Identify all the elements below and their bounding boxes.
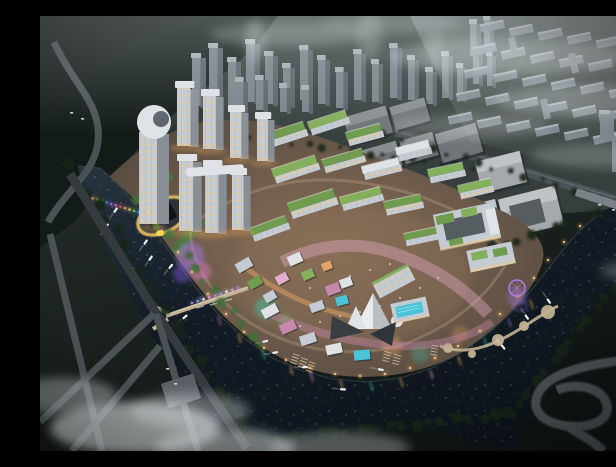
tree xyxy=(101,215,109,223)
midrise-windows xyxy=(398,148,432,160)
bg-tower-roof xyxy=(335,67,344,72)
retail-village xyxy=(235,251,372,362)
retail-roof xyxy=(263,290,278,304)
housing-bar xyxy=(501,48,526,60)
architectural-rendering xyxy=(40,16,616,451)
housing-bar-roof xyxy=(464,66,488,73)
vignette xyxy=(40,16,616,451)
tower-base-glow xyxy=(225,229,254,236)
boat xyxy=(302,366,308,368)
light-reflections xyxy=(200,296,533,391)
hotel-slab xyxy=(372,264,416,299)
car xyxy=(612,209,615,211)
warehouse-roof xyxy=(399,132,434,149)
housing-bar-vertical xyxy=(598,113,609,134)
street-light xyxy=(177,251,179,253)
tower-roof xyxy=(255,112,271,119)
light-reflection xyxy=(484,338,487,347)
housing-row xyxy=(501,47,526,60)
tower-windows xyxy=(203,94,216,149)
street-lights xyxy=(145,209,582,378)
housing-bar-roof xyxy=(506,120,530,127)
boat-wake xyxy=(100,229,104,235)
bg-tower xyxy=(283,66,290,106)
midrise-parapet xyxy=(403,226,438,234)
rainbow-light xyxy=(138,211,140,213)
dusk-sky-ground xyxy=(40,16,616,451)
tree xyxy=(552,182,558,188)
housing-bar xyxy=(564,129,589,141)
tower-roof xyxy=(175,81,194,88)
water-glow xyxy=(191,262,211,282)
car xyxy=(166,368,169,370)
right-block xyxy=(612,134,616,172)
street-light xyxy=(225,313,227,315)
housing-bar xyxy=(538,29,563,41)
midrise-facade xyxy=(265,129,309,149)
warehouse xyxy=(355,140,405,180)
weir-light-glow xyxy=(218,291,223,296)
tower-roof xyxy=(177,154,197,161)
street-light xyxy=(334,373,336,375)
dock-tick xyxy=(393,360,400,362)
housing-row xyxy=(509,24,534,37)
tree xyxy=(160,305,170,315)
bg-tower xyxy=(318,58,325,104)
light-reflection xyxy=(508,318,511,327)
dock-tick xyxy=(300,360,307,362)
retail-unit xyxy=(325,282,343,298)
midrise-facade xyxy=(406,233,442,246)
car xyxy=(70,112,73,114)
warehouse-shadow xyxy=(477,153,529,195)
dock-tick xyxy=(431,351,438,352)
warehouse-roof xyxy=(498,186,558,214)
retail-shadow xyxy=(276,273,291,287)
pier-platforms xyxy=(443,305,555,358)
cloud xyxy=(600,261,616,281)
tree xyxy=(444,153,448,157)
housing-bar-roof xyxy=(580,82,604,89)
isolated-building xyxy=(161,373,201,408)
dock-tick xyxy=(384,351,391,353)
rainbow-light xyxy=(128,208,130,210)
retail-unit xyxy=(247,275,265,292)
boat-wake xyxy=(177,319,182,323)
cloud xyxy=(358,16,382,61)
street-light-glow xyxy=(432,355,437,360)
retail-roof xyxy=(309,300,325,313)
bg-tower-roof xyxy=(255,75,264,80)
bg-tower-side xyxy=(263,80,268,112)
midrise-facade xyxy=(386,201,425,215)
tree xyxy=(196,354,208,366)
tree xyxy=(234,129,242,137)
housing-row xyxy=(567,32,592,45)
boat xyxy=(143,239,148,245)
housing-bar-roof xyxy=(472,43,496,50)
street-light-glow xyxy=(407,365,412,370)
tree xyxy=(599,293,609,303)
retail-shadow xyxy=(280,320,299,336)
warehouse xyxy=(389,97,433,133)
rainbow-light-glow xyxy=(113,203,118,208)
housing-row xyxy=(601,109,616,122)
office-court-block xyxy=(433,202,501,251)
tower-windows xyxy=(179,159,193,231)
tower-cluster xyxy=(169,81,278,239)
midrise-facade xyxy=(291,197,339,219)
development-site-ground xyxy=(110,120,543,377)
bg-tower-side xyxy=(201,58,206,108)
midrise xyxy=(345,123,385,147)
ring-road xyxy=(190,180,510,352)
housing-row xyxy=(485,93,510,106)
light-reflection xyxy=(262,350,265,359)
warehouse-roof xyxy=(475,151,522,173)
weir-light xyxy=(225,291,227,293)
warehouse-shadow xyxy=(346,108,396,147)
bg-tower-roof xyxy=(235,77,244,82)
tree xyxy=(367,151,375,159)
tree xyxy=(440,163,446,169)
midrise-windows xyxy=(275,164,320,182)
street-light-glow xyxy=(189,269,194,274)
tree xyxy=(551,354,561,364)
dock xyxy=(290,354,300,365)
retail-unit xyxy=(279,319,299,336)
tree xyxy=(434,417,444,427)
retail-unit xyxy=(339,276,355,290)
weir-light xyxy=(231,289,233,291)
car xyxy=(174,383,177,385)
retail-roof xyxy=(339,276,353,289)
tree xyxy=(475,159,483,167)
boat xyxy=(546,298,551,304)
light-reflection xyxy=(218,316,221,325)
housing-row xyxy=(530,51,555,64)
tree xyxy=(78,175,86,183)
bg-tower-side xyxy=(493,56,496,88)
housing-row xyxy=(480,20,505,33)
housing-row xyxy=(564,128,589,141)
weir-light-glow xyxy=(195,299,200,304)
weir-foam xyxy=(196,299,232,308)
housing-row xyxy=(559,55,584,68)
tree xyxy=(480,414,490,424)
housing-bar xyxy=(485,94,510,106)
midrise xyxy=(361,157,402,181)
housing-bar-roof xyxy=(559,55,583,62)
boat-group xyxy=(495,338,506,350)
bg-tower xyxy=(473,44,479,84)
warehouse-body xyxy=(389,98,430,131)
cloud xyxy=(320,16,460,34)
midrise xyxy=(261,120,309,149)
light-reflection xyxy=(458,356,461,365)
warehouse xyxy=(343,105,396,147)
light-reflection xyxy=(238,334,241,343)
bg-tower-side xyxy=(463,68,467,102)
bg-tower-side xyxy=(479,46,483,86)
retail-shadow xyxy=(300,333,318,347)
midrise-facade xyxy=(342,194,384,211)
light-reflection xyxy=(200,296,203,305)
dock-tick xyxy=(432,345,439,346)
southwest-roads xyxy=(40,42,247,451)
retail-shadow xyxy=(326,283,343,297)
housing-bar-roof xyxy=(448,112,472,119)
bg-tower xyxy=(209,46,218,104)
rainbow-light xyxy=(147,214,149,216)
boats xyxy=(99,207,551,391)
rainbow-light-glow xyxy=(145,212,150,217)
street-light xyxy=(479,330,481,332)
plaza-dot xyxy=(369,269,371,271)
cloud xyxy=(130,393,250,429)
boat-wake xyxy=(332,388,339,389)
weir-light-glow xyxy=(207,295,212,300)
dock-tick xyxy=(383,357,390,359)
warehouse-roof xyxy=(389,98,426,116)
street-light xyxy=(309,367,311,369)
retail-roof xyxy=(335,295,349,307)
tree xyxy=(611,284,616,296)
housing-row xyxy=(580,82,605,95)
car xyxy=(81,118,84,120)
tree xyxy=(216,298,226,308)
tree xyxy=(378,130,386,138)
street-light xyxy=(434,357,436,359)
tower-front xyxy=(179,159,193,231)
cloud xyxy=(50,402,220,451)
tree xyxy=(199,279,205,285)
lawn-strip xyxy=(170,215,205,258)
bg-tower xyxy=(354,52,361,100)
bg-tower xyxy=(426,70,433,104)
rainbow-light-glow xyxy=(104,200,109,205)
pier-platform xyxy=(443,343,453,353)
tree xyxy=(248,135,252,139)
dock xyxy=(392,354,401,365)
tree xyxy=(184,345,194,355)
bg-tower-roof xyxy=(208,43,218,48)
plaza-dot xyxy=(389,263,391,265)
midrise-blocks xyxy=(249,109,495,246)
warehouse-shadow xyxy=(392,100,433,133)
housing-bar xyxy=(472,44,497,56)
cloud xyxy=(245,19,265,63)
light-reflection xyxy=(290,366,293,375)
retail-roof xyxy=(235,257,254,274)
tree xyxy=(357,424,367,434)
event-tent xyxy=(346,293,403,329)
housing-row xyxy=(456,89,481,102)
dock-tick xyxy=(394,357,401,359)
street-light-glow xyxy=(531,275,536,280)
boat-group xyxy=(332,387,346,390)
bg-tower xyxy=(192,56,201,106)
dock-tick xyxy=(301,358,308,360)
tree xyxy=(185,251,193,259)
tree xyxy=(179,331,187,339)
boat xyxy=(148,255,153,261)
tree xyxy=(571,219,577,225)
retail-shadow xyxy=(288,253,305,268)
water-glow xyxy=(255,297,277,319)
housing-row xyxy=(593,132,616,145)
right-block xyxy=(600,112,614,138)
midrise-roof xyxy=(395,140,430,155)
rendering-canvas xyxy=(40,16,616,451)
housing-bar xyxy=(601,110,616,122)
rainbow-light xyxy=(124,207,126,209)
tower-base-glow xyxy=(195,148,227,155)
tree xyxy=(185,122,193,130)
bg-tower xyxy=(336,70,343,108)
tower-side xyxy=(240,113,248,159)
warehouse xyxy=(468,198,503,230)
bg-tower-side xyxy=(343,72,348,110)
background-city-ground xyxy=(190,16,616,216)
retail-unit xyxy=(335,294,350,308)
midrise-windows xyxy=(291,198,338,217)
tree xyxy=(508,168,514,174)
housing-bar xyxy=(593,133,616,145)
tree xyxy=(307,141,313,147)
housing-bar xyxy=(551,79,576,91)
tree xyxy=(152,222,160,230)
midrise-roof xyxy=(261,122,305,143)
housing-bar xyxy=(522,75,547,87)
tree xyxy=(125,256,133,264)
tree xyxy=(156,291,164,299)
tree xyxy=(552,222,560,230)
plaza-paths xyxy=(246,246,492,346)
light-reflection xyxy=(370,382,373,391)
bg-tower-side xyxy=(243,82,248,116)
boat-wake xyxy=(139,245,143,251)
tree xyxy=(234,412,242,420)
midrise-windows xyxy=(265,130,308,148)
tree xyxy=(216,131,222,137)
tree xyxy=(257,342,263,348)
boat-wake xyxy=(255,342,262,344)
cloud xyxy=(390,38,616,74)
tree xyxy=(489,167,493,171)
bg-tower-side xyxy=(379,64,383,104)
tower-skybridge xyxy=(186,164,244,177)
housing-bar xyxy=(559,56,584,68)
retail-roof xyxy=(321,261,333,272)
street-light xyxy=(285,359,287,361)
rainbow-light xyxy=(142,213,144,215)
tree xyxy=(141,279,153,291)
tree xyxy=(165,229,175,239)
bg-tower xyxy=(390,46,397,98)
tower-windows xyxy=(232,173,244,230)
midrise-parapet xyxy=(261,121,303,136)
midrise xyxy=(287,188,339,219)
crescent-tower xyxy=(137,105,171,232)
housing-row xyxy=(535,124,560,137)
pier-platform xyxy=(519,321,529,331)
retail-roof xyxy=(301,268,316,281)
housing-bar-roof xyxy=(509,24,533,31)
ferris-wheel xyxy=(509,280,527,311)
tree xyxy=(541,177,545,181)
tree xyxy=(173,244,179,250)
warehouse-court xyxy=(509,198,546,229)
boat-wake xyxy=(496,339,500,344)
light-reflection xyxy=(400,378,403,387)
housing-grid xyxy=(448,20,616,145)
midrise-roof xyxy=(361,158,400,174)
midrise-parapet xyxy=(321,148,362,161)
bg-tower-roof xyxy=(299,45,308,50)
boat-group xyxy=(108,207,118,220)
bg-tower-side xyxy=(287,88,291,114)
street-light-glow xyxy=(455,343,460,348)
water-glow xyxy=(452,326,468,342)
northwest-forest xyxy=(40,16,278,248)
tower-side xyxy=(242,176,250,231)
tree xyxy=(538,230,544,236)
bg-tower-side xyxy=(308,50,313,102)
housing-bar xyxy=(448,113,473,125)
midrise-roof xyxy=(287,189,335,212)
boat xyxy=(500,344,506,350)
rainbow-light-glow xyxy=(127,207,132,212)
housing-bar-roof xyxy=(572,105,596,112)
rainbow-light xyxy=(92,197,94,199)
dock-tick xyxy=(293,354,300,356)
shoreline-edge xyxy=(78,166,598,382)
plaza-dot xyxy=(339,315,341,317)
street-light xyxy=(499,313,501,315)
boat xyxy=(262,339,268,343)
tree xyxy=(451,412,463,424)
boat xyxy=(340,388,346,391)
warehouse xyxy=(498,185,567,241)
tree xyxy=(597,197,603,203)
midrise-roof xyxy=(403,226,440,240)
cloud xyxy=(40,378,117,414)
street-light-glow xyxy=(223,311,228,316)
tree xyxy=(215,386,225,396)
street-light xyxy=(384,373,386,375)
plaza-dot xyxy=(419,287,421,289)
tower-side xyxy=(189,89,198,147)
rainbow-light xyxy=(110,203,112,205)
midrise-parapet xyxy=(249,215,285,229)
housing-row xyxy=(493,70,518,83)
retail-roof xyxy=(299,332,317,346)
stage-wedge-2 xyxy=(370,322,396,346)
bg-tower-side xyxy=(218,48,223,106)
retail-shadow xyxy=(336,296,350,308)
retail-roof xyxy=(247,275,264,290)
plaza-dot xyxy=(437,277,439,279)
tree xyxy=(211,286,219,294)
bg-tower xyxy=(256,78,263,110)
tree xyxy=(249,332,259,342)
housing-row xyxy=(572,105,597,118)
pier-platform xyxy=(468,350,476,358)
retail-shadow xyxy=(355,351,372,363)
housing-row xyxy=(596,36,616,49)
retail-unit xyxy=(275,271,291,286)
